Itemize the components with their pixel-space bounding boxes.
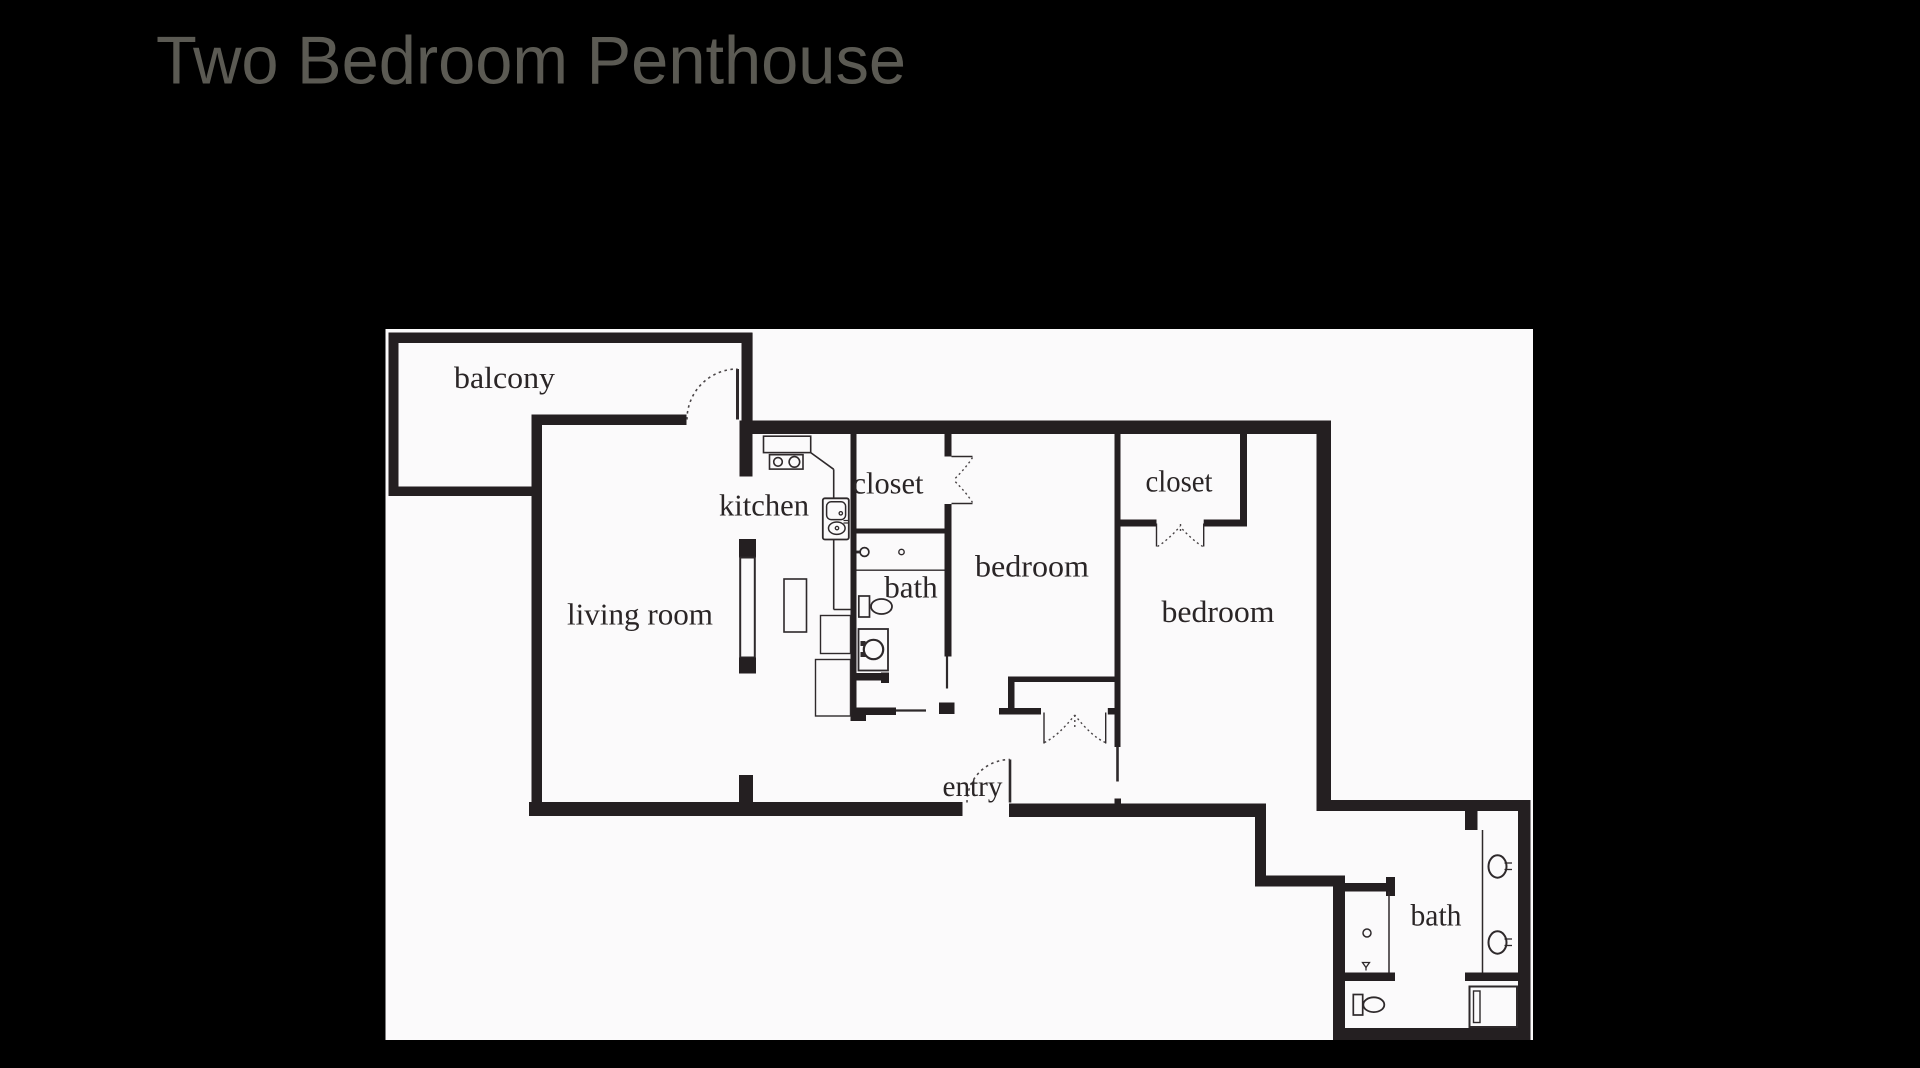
svg-text:living room: living room [567,597,713,632]
svg-text:kitchen: kitchen [719,488,809,523]
svg-text:bath: bath [884,569,938,604]
svg-text:entry: entry [943,770,1003,803]
svg-text:Two Bedroom Penthouse: Two Bedroom Penthouse [156,23,906,99]
svg-text:closet: closet [853,466,924,501]
svg-text:bedroom: bedroom [975,548,1089,583]
svg-text:bedroom: bedroom [1162,594,1275,629]
svg-text:closet: closet [1146,464,1213,499]
svg-text:bath: bath [1411,898,1462,933]
svg-text:balcony: balcony [454,360,556,395]
